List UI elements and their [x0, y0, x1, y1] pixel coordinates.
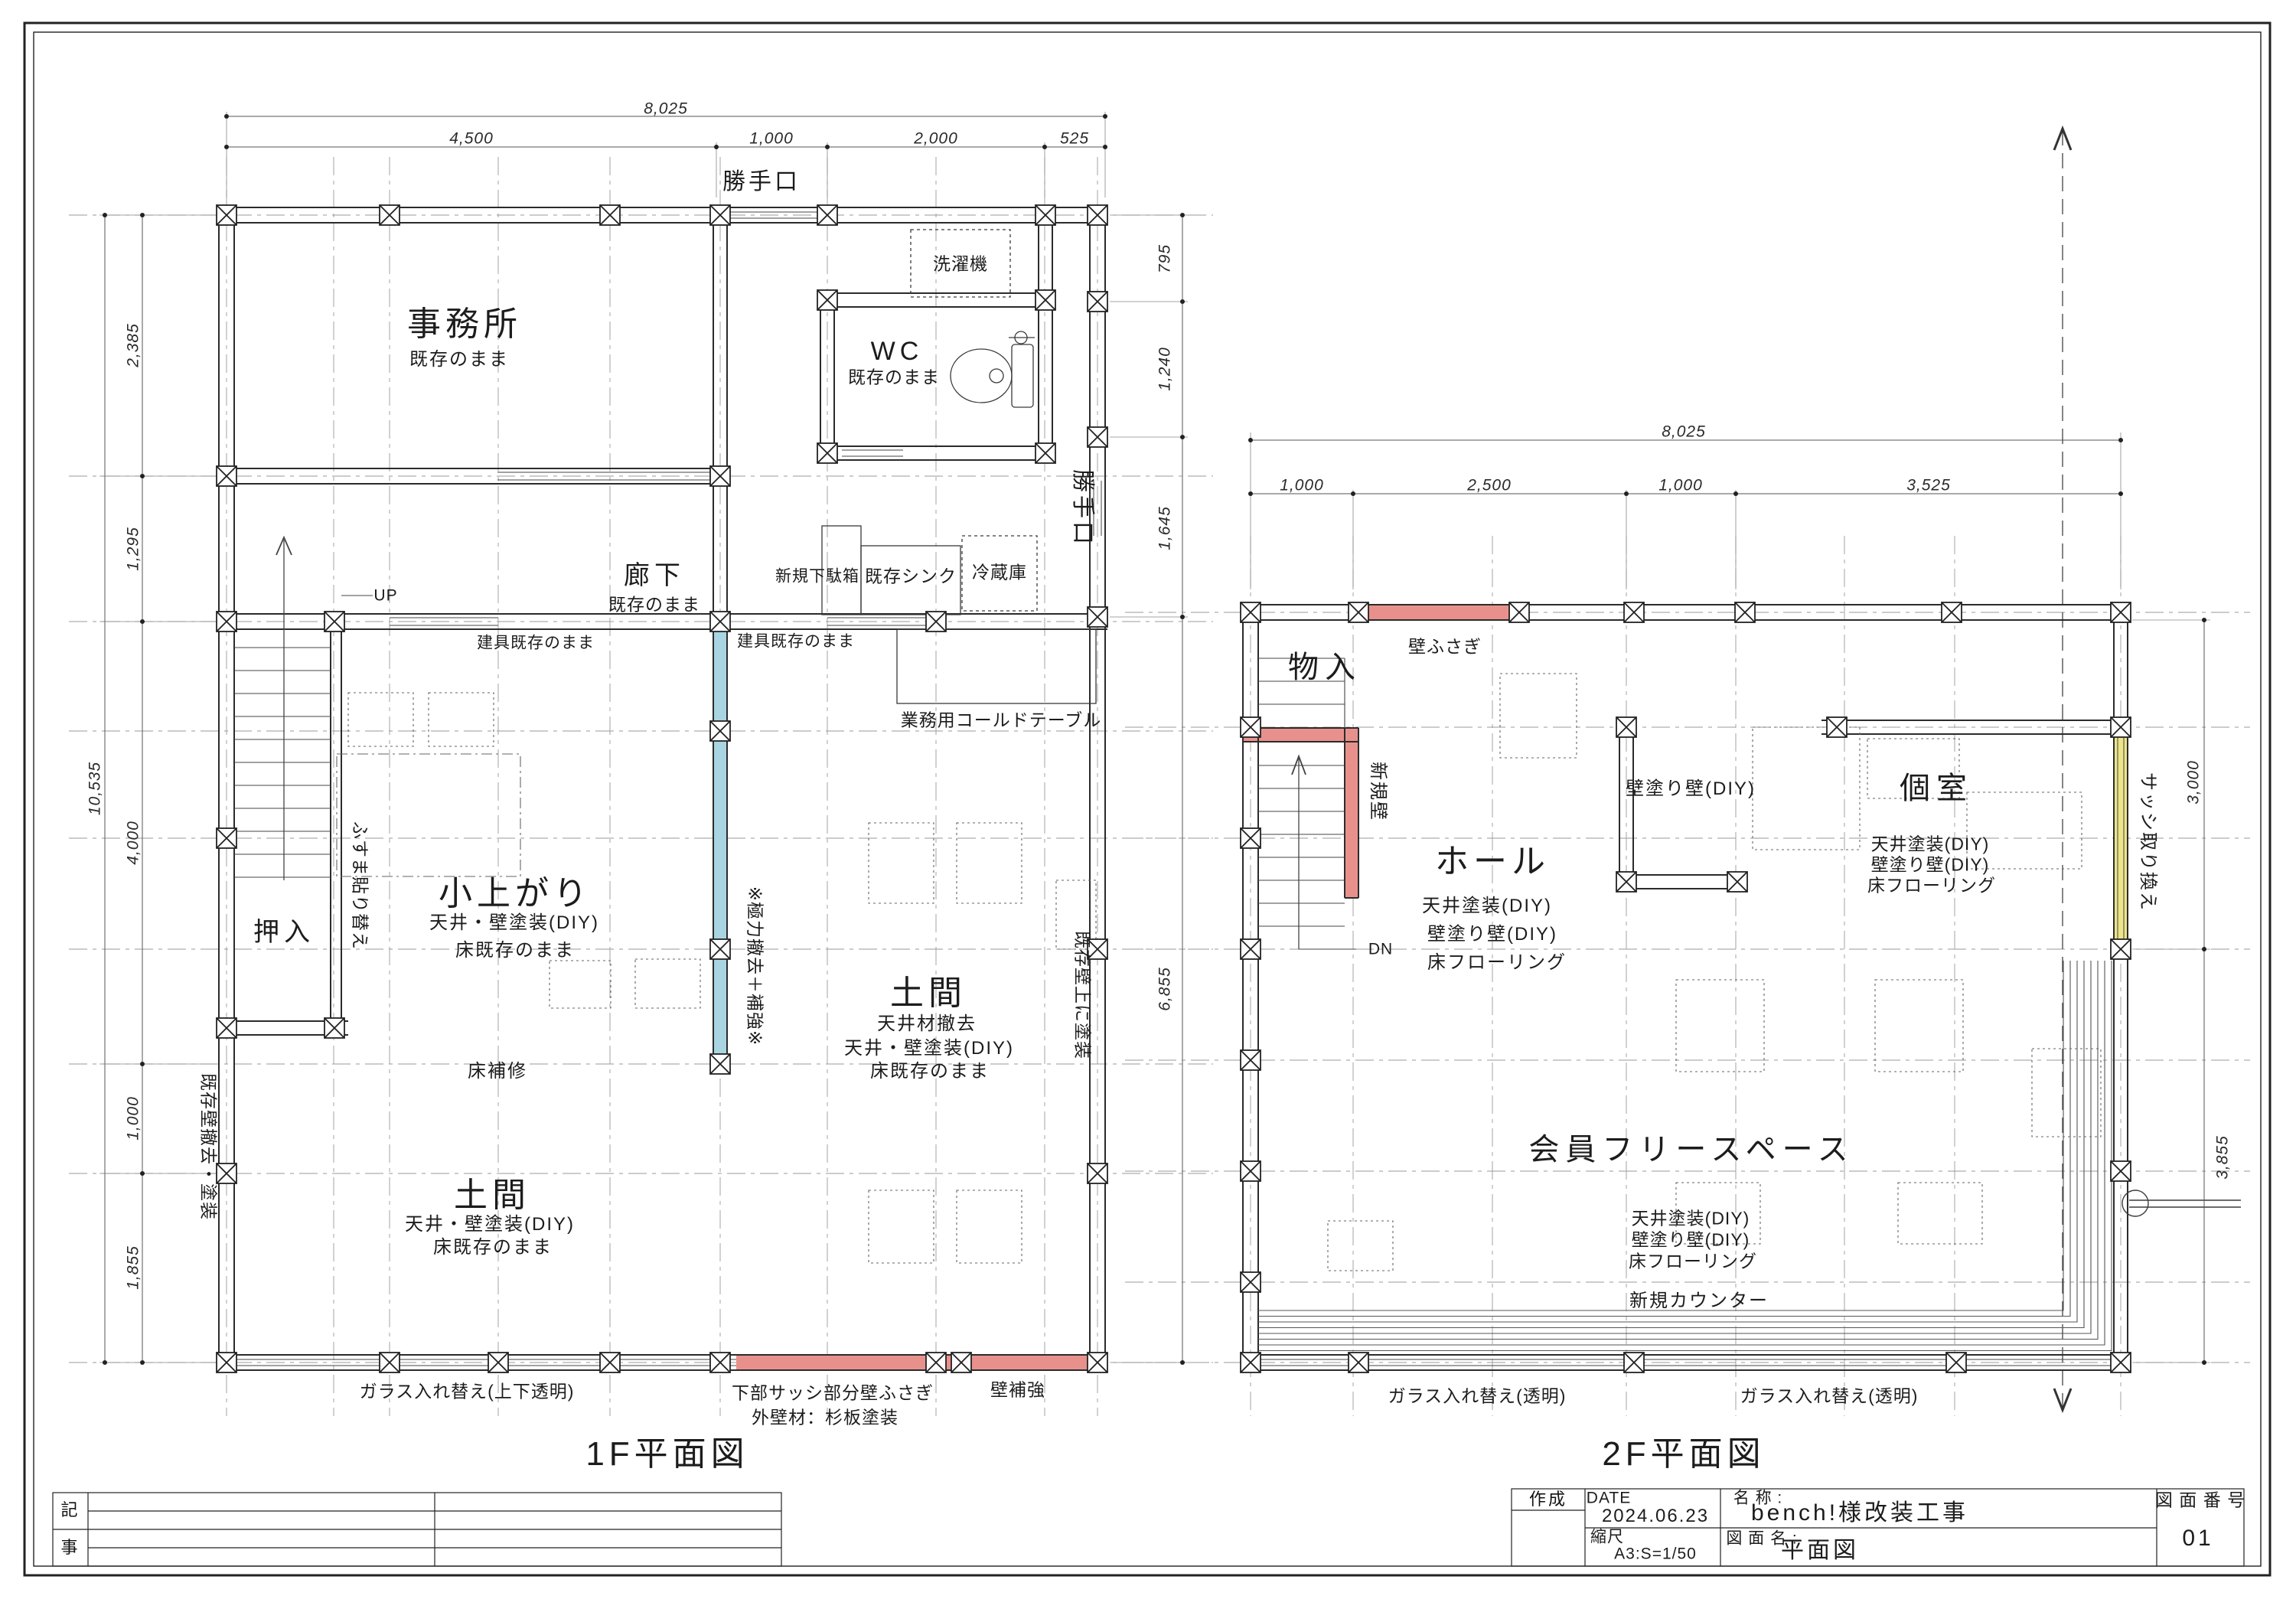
floor2-stair — [1258, 658, 1356, 949]
room-doma-center-note2: 天井・壁塗装(DIY) — [844, 1039, 1014, 1058]
dim-1f-h1: 2,385 — [126, 323, 142, 367]
dim-1f-height-total: 10,535 — [87, 762, 103, 815]
label-fridge: 冷蔵庫 — [972, 564, 1027, 582]
wall-highlight-red-1f — [736, 1356, 1105, 1369]
room-free: 会員フリースペース — [1528, 1134, 1854, 1165]
drawing-sheet: 8,025 4,500 1,000 2,000 525 10,535 2,385… — [0, 0, 2296, 1622]
label-wall-close: 壁ふさぎ — [1408, 638, 1482, 656]
room-koshitsu-note3: 床フローリング — [1867, 877, 1996, 895]
room-doma-center-note1: 天井材撤去 — [877, 1015, 977, 1033]
room-hall: ホール — [1435, 845, 1550, 879]
floor1-columns — [217, 205, 1107, 1372]
dim-2f-w1: 1,000 — [1280, 478, 1324, 494]
label-fittings-1: 建具既存のまま — [477, 635, 595, 651]
label-floor-repair: 床補修 — [468, 1062, 527, 1081]
dim-1f-r3: 1,645 — [1157, 506, 1173, 550]
room-free-note2: 壁塗り壁(DIY) — [1632, 1232, 1750, 1249]
label-wall-reinforce: 壁補強 — [990, 1382, 1045, 1399]
floorplan-linework — [0, 0, 2296, 1622]
room-doma-center-note3: 床既存のまま — [870, 1062, 990, 1081]
label-washer: 洗濯機 — [933, 256, 988, 273]
floor1-doors-windows — [227, 212, 1101, 1366]
dim-1f-r4: 6,855 — [1157, 967, 1173, 1011]
label-siding: 外壁材：杉板塗装 — [752, 1409, 899, 1427]
section-line — [2054, 129, 2071, 1410]
titleblock-dwg: 平面図 — [1781, 1539, 1859, 1562]
room-doma-south: 土間 — [454, 1179, 530, 1212]
room-koshitsu-note1: 天井塗装(DIY) — [1871, 836, 1990, 853]
room-wc: WC — [871, 338, 924, 364]
room-koagari-note2: 床既存のまま — [455, 942, 575, 960]
dim-2f-w2: 2,500 — [1467, 478, 1512, 494]
floor2-handrail — [2122, 1190, 2241, 1216]
dim-1f-w3: 2,000 — [914, 131, 958, 147]
dim-1f-h5: 1,855 — [126, 1245, 142, 1290]
room-doma-center: 土間 — [890, 977, 967, 1010]
room-corridor-note: 既存のまま — [608, 596, 700, 614]
floor1-walls — [219, 207, 1107, 1370]
label-sink: 既存シンク — [865, 568, 957, 586]
titleblock-sakusei: 作成 — [1529, 1491, 1567, 1508]
room-doma-south-note2: 床既存のまま — [433, 1239, 553, 1257]
titleblock-no-label: 図 面 番 号 — [2155, 1492, 2245, 1509]
room-wc-note: 既存のまま — [848, 369, 940, 387]
label-glass-replace-1f: ガラス入れ替え(上下透明) — [360, 1383, 575, 1401]
dim-1f-width-total: 8,025 — [644, 101, 688, 117]
label-cold-table: 業務用コールドテーブル — [901, 712, 1102, 729]
room-office: 事務所 — [407, 308, 522, 341]
cold-table — [897, 629, 1096, 703]
dim-1f-w2: 1,000 — [749, 131, 794, 147]
room-corridor: 廊下 — [624, 563, 685, 589]
room-free-note1: 天井塗装(DIY) — [1632, 1210, 1750, 1228]
label-new-wall: 新規壁 — [1368, 762, 1387, 821]
dim-2f-w3: 1,000 — [1658, 478, 1703, 494]
label-up: UP — [373, 588, 397, 604]
titleblock-date: 2024.06.23 — [1602, 1507, 1709, 1526]
room-mono: 物入 — [1288, 652, 1362, 683]
room-koagari-note1: 天井・壁塗装(DIY) — [429, 914, 599, 932]
label-sash-close: 下部サッシ部分壁ふさぎ — [732, 1385, 934, 1402]
wall-highlight-blue — [713, 622, 727, 1064]
label-sash-replace: サッシ取り換え — [2138, 772, 2157, 912]
toilet — [951, 331, 1035, 407]
floor1-title: 1F平面図 — [585, 1438, 748, 1471]
wall-highlight-yellow — [2115, 731, 2127, 949]
label-paint-over: 既存壁上に塗装 — [1074, 931, 1091, 1059]
dim-1f-w1: 4,500 — [449, 131, 494, 147]
dim-2f-r2: 3,855 — [2215, 1135, 2231, 1180]
label-katteguchi-top: 勝手口 — [722, 171, 801, 194]
dim-1f-h4: 1,000 — [126, 1096, 142, 1141]
label-wall-remove: 既存壁撤去・塗装 — [200, 1073, 217, 1220]
room-free-note3: 床フローリング — [1629, 1253, 1757, 1271]
titleblock-scale-label: 縮尺 — [1590, 1529, 1624, 1545]
label-wall-paint: 壁塗り壁(DIY) — [1626, 780, 1756, 798]
dim-1f-h2: 1,295 — [126, 527, 142, 571]
room-doma-south-note1: 天井・壁塗装(DIY) — [405, 1216, 575, 1234]
floor2-title: 2F平面図 — [1602, 1438, 1765, 1471]
label-fittings-2: 建具既存のまま — [737, 634, 855, 650]
label-new-counter: 新規カウンター — [1629, 1292, 1769, 1310]
titleblock-date-label: DATE — [1587, 1490, 1631, 1506]
label-katteguchi-right: 勝手口 — [1071, 469, 1094, 547]
titleblock-scale: A3:S=1/50 — [1614, 1546, 1697, 1562]
room-koshitsu: 個室 — [1900, 773, 1973, 804]
room-hall-note2: 壁塗り壁(DIY) — [1427, 925, 1557, 944]
label-dn: DN — [1368, 942, 1393, 958]
wall-highlight-red-2f-top — [1362, 605, 1509, 619]
room-oshiire: 押入 — [253, 919, 315, 945]
dim-1f-h3: 4,000 — [126, 821, 142, 865]
room-hall-note3: 床フローリング — [1427, 954, 1567, 972]
pole-symbol — [2122, 1190, 2148, 1216]
dim-1f-r1: 795 — [1157, 244, 1173, 273]
dimension-extensions — [99, 112, 2210, 1363]
room-hall-note1: 天井塗装(DIY) — [1422, 897, 1552, 915]
titleblock-ji: 事 — [60, 1539, 80, 1556]
room-office-note: 既存のまま — [409, 351, 509, 369]
wall-highlight-red-2f-v — [1345, 728, 1358, 898]
titleblock-name: bench!様改装工事 — [1751, 1502, 1968, 1525]
dim-1f-w4: 525 — [1060, 131, 1089, 147]
dim-1f-r2: 1,240 — [1157, 347, 1173, 391]
dim-2f-r1: 3,000 — [2186, 760, 2202, 804]
label-fusuma: ふすま貼り替え — [351, 821, 369, 950]
titleblock-no: 01 — [2182, 1527, 2213, 1550]
room-koagari: 小上がり — [439, 877, 592, 911]
label-remove-reinforce: ※極力撤去＋補強※ — [746, 886, 764, 1046]
label-glass-left: ガラス入れ替え(透明) — [1388, 1388, 1567, 1405]
label-geta-box: 新規下駄箱 — [775, 569, 859, 585]
dimension-lines — [105, 116, 2204, 1363]
dim-2f-w4: 3,525 — [1906, 478, 1951, 494]
titleblock-ki: 記 — [60, 1502, 80, 1519]
room-koshitsu-note2: 壁塗り壁(DIY) — [1871, 857, 1990, 874]
label-glass-right: ガラス入れ替え(透明) — [1740, 1388, 1919, 1405]
dim-2f-width-total: 8,025 — [1662, 424, 1706, 440]
